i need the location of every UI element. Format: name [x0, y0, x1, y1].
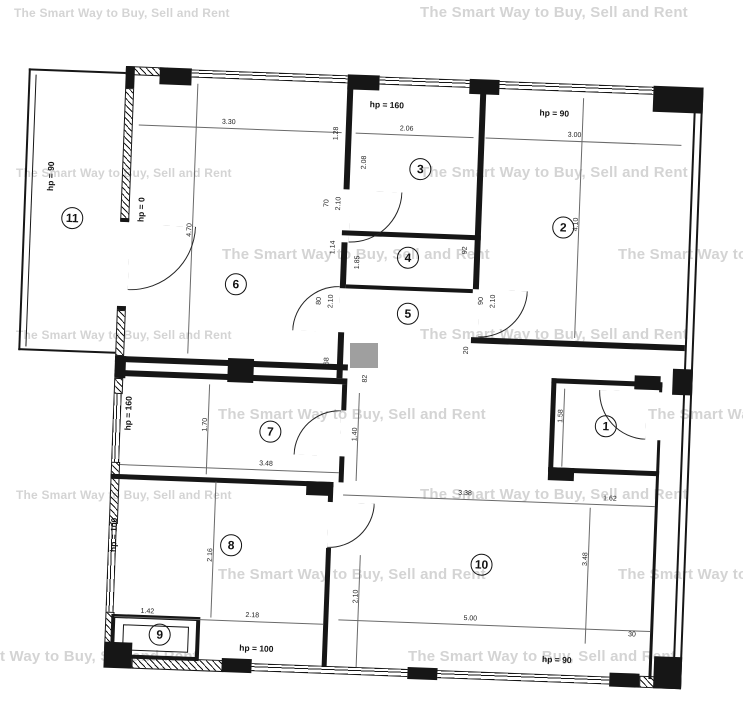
dim-label: 90	[478, 297, 485, 305]
hp-label: hp = 90	[45, 161, 56, 191]
hp-label: hp = 100	[108, 518, 119, 553]
dim-label: 68	[323, 357, 330, 365]
hp-label: hp = 0	[136, 197, 147, 222]
wall	[322, 548, 331, 667]
dim-line	[486, 138, 682, 146]
wall-hatch	[639, 676, 681, 690]
wall-hatch	[109, 462, 120, 524]
dim-label: 1.42	[140, 608, 154, 616]
dim-line	[139, 125, 342, 134]
dim-label: 1.28	[333, 127, 341, 141]
wall-pier	[306, 481, 333, 496]
dim-label: 1.40	[351, 427, 359, 441]
dim-line	[187, 84, 198, 354]
wall	[659, 382, 662, 392]
wall-pier	[634, 375, 661, 390]
hp-label: hp = 90	[539, 108, 569, 119]
window	[192, 69, 348, 83]
wall	[336, 332, 344, 378]
room-circle-8: 8	[220, 534, 243, 557]
balcony-wall	[18, 68, 31, 350]
door-arc-room6	[292, 284, 340, 332]
wall-hatch	[114, 378, 124, 394]
dim-label: 1.62	[603, 495, 617, 503]
dim-label: 3.48	[582, 552, 590, 566]
dim-label: 2.18	[245, 612, 259, 620]
dim-label: 5.00	[463, 615, 477, 623]
door-arc-room2	[478, 289, 528, 339]
dim-label: 2.08	[361, 156, 369, 170]
room-circle-4: 4	[397, 246, 420, 269]
wall-pier	[672, 369, 693, 396]
wall	[548, 378, 557, 472]
dim-label: 2.16	[207, 548, 215, 562]
dim-label: 3.48	[259, 460, 273, 468]
balcony-wall	[18, 348, 115, 354]
wall	[346, 284, 473, 293]
window	[499, 81, 653, 95]
door-arc-room8	[327, 502, 375, 550]
wall	[473, 88, 487, 289]
dim-label: 2.06	[400, 125, 414, 133]
room-circle-2: 2	[552, 216, 575, 239]
dim-label: 20	[463, 346, 470, 354]
watermark-tile: The Smart Way to Buy, Sell and Rent	[14, 6, 230, 20]
dim-label: 2.10	[489, 295, 497, 309]
window	[251, 663, 407, 677]
hp-label: hp = 100	[239, 643, 274, 654]
window	[437, 670, 609, 684]
wall-hatch	[115, 310, 126, 356]
wall	[120, 218, 129, 222]
wall-pier	[609, 673, 640, 688]
room-circle-6: 6	[224, 273, 247, 296]
dim-label: 2.10	[352, 590, 360, 604]
dim-line	[585, 508, 591, 644]
room-circle-10: 10	[470, 553, 493, 576]
dim-label: 2.10	[327, 294, 335, 308]
wall-pier	[407, 667, 437, 680]
wall-pier	[221, 658, 252, 673]
wall	[471, 337, 685, 351]
dim-line	[356, 555, 361, 667]
dim-label: 70	[323, 199, 330, 207]
dim-label: 92	[462, 246, 469, 254]
dim-label: 82	[362, 375, 369, 383]
dim-label: 2.10	[335, 197, 343, 211]
wall-pier	[159, 67, 192, 85]
floorplan-scan: The Smart Way to Buy, Sell and Rent The …	[0, 0, 743, 720]
wall	[339, 456, 345, 482]
dim-line	[561, 389, 565, 467]
dim-label: 1.70	[202, 418, 210, 432]
dim-line	[120, 464, 339, 473]
dim-label: 3.38	[458, 490, 472, 498]
window	[379, 77, 469, 88]
watermark-tile: The Smart Way to Buy, Sell and Rent	[420, 4, 688, 21]
wall	[344, 83, 354, 189]
door-arc-room7	[294, 409, 342, 457]
watermark-logo-square	[350, 343, 378, 368]
wall-hatch	[120, 88, 134, 221]
room-circle-3: 3	[409, 158, 432, 181]
wall-pier	[227, 358, 254, 383]
dim-label: 4.70	[186, 223, 194, 237]
dim-line	[338, 619, 650, 632]
wall	[341, 384, 347, 410]
dim-label: 3.30	[222, 119, 236, 127]
dim-label: 80	[316, 297, 323, 305]
room-circle-1: 1	[594, 415, 617, 438]
wall-corner	[653, 86, 704, 114]
wall-jog	[548, 467, 574, 481]
room-circle-7: 7	[259, 420, 282, 443]
room-circle-11: 11	[61, 207, 84, 230]
floorplan: 3.30 2.06 3.00 4.70 4.10 1.28 2.08 70 2.…	[103, 66, 703, 689]
room-circle-5: 5	[396, 302, 419, 325]
window	[111, 394, 122, 462]
dim-label: 30	[628, 631, 636, 638]
dim-label: 3.00	[568, 132, 582, 140]
wall	[111, 474, 334, 487]
hp-label: hp = 160	[370, 99, 405, 110]
balcony-wall	[29, 68, 126, 74]
wall	[340, 242, 348, 288]
dim-label: 1.58	[557, 409, 565, 423]
hp-label: hp = 160	[122, 396, 133, 431]
hp-label: hp = 90	[542, 654, 572, 665]
wall-pier	[125, 66, 135, 88]
dim-label: 1.14	[329, 240, 337, 254]
dim-label: 1.85	[354, 255, 362, 269]
dim-line	[356, 133, 474, 138]
